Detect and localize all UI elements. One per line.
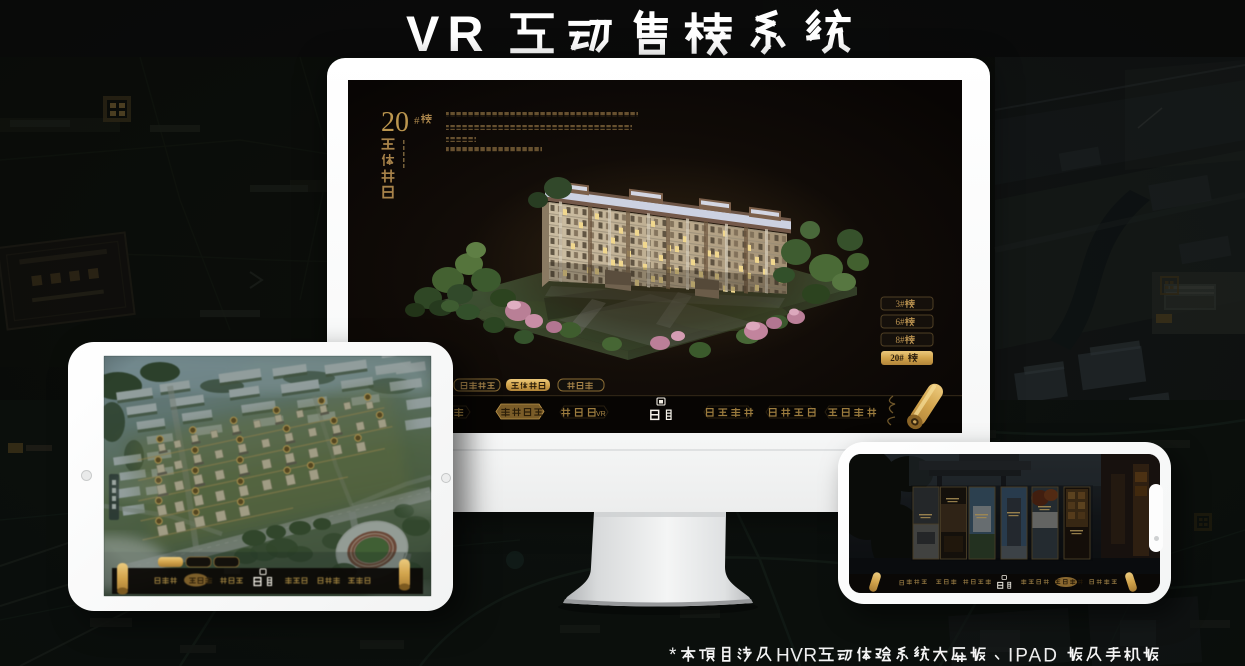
svg-text:6#: 6# [896, 317, 906, 327]
svg-text:IPAD: IPAD [1008, 646, 1059, 666]
svg-text:HVR: HVR [776, 646, 818, 666]
svg-text:20#: 20# [890, 353, 904, 363]
svg-text:20: 20 [381, 107, 409, 138]
svg-text:VR: VR [406, 6, 491, 60]
svg-text:8#: 8# [896, 335, 906, 345]
svg-text:*: * [669, 645, 677, 666]
svg-text:3#: 3# [896, 299, 906, 309]
svg-text:#: # [414, 115, 420, 127]
svg-text:VR: VR [596, 411, 606, 418]
